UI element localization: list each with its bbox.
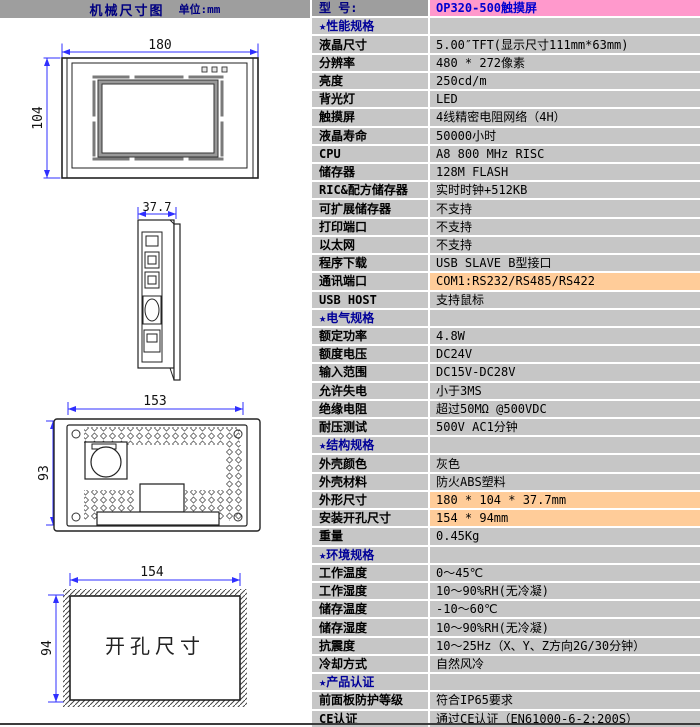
spec-value: 500V AC1分钟 [428, 419, 700, 435]
table-row: 储存湿度 10～90%RH(无冷凝) [312, 617, 700, 635]
table-row: 通讯端口 COM1:RS232/RS485/RS422 [312, 271, 700, 289]
spec-label: CPU [312, 146, 428, 162]
mechanical-drawing-pane: 180 104 [0, 0, 310, 727]
spec-label: 液晶尺寸 [312, 36, 428, 52]
spec-label: 亮度 [312, 73, 428, 89]
table-row: 打印端口 不支持 [312, 217, 700, 235]
spec-value: 0～45℃ [428, 565, 700, 581]
spec-label: 额定功率 [312, 328, 428, 344]
spec-value: 4线精密电阻网络（4H） [428, 109, 700, 125]
spec-value: 154 * 94mm [428, 510, 700, 526]
table-row: 背光灯 LED [312, 89, 700, 107]
spec-label: 分辨率 [312, 55, 428, 71]
table-row: 外壳材料 防火ABS塑料 [312, 472, 700, 490]
table-row: 外形尺寸 180 * 104 * 37.7mm [312, 490, 700, 508]
spec-value: 不支持 [428, 200, 700, 216]
spec-value: A8 800 MHz RISC [428, 146, 700, 162]
spec-label: 输入范围 [312, 364, 428, 380]
datasheet-page: 180 104 [0, 0, 700, 727]
side-com-port [143, 296, 161, 324]
side-power-terminal [144, 330, 160, 352]
table-row: 额度电压 DC24V [312, 344, 700, 362]
spec-label: 绝缘电阻 [312, 401, 428, 417]
cutout-label: 开孔尺寸 [105, 634, 205, 658]
spec-value: 支持鼠标 [428, 292, 700, 308]
spec-label: 抗震度 [312, 638, 428, 654]
spec-label: ★产品认证 [312, 674, 428, 690]
spec-value: 小于3MS [428, 383, 700, 399]
side-depth-dim: 37.7 [143, 200, 172, 214]
spec-value [428, 547, 700, 563]
spec-label: 背光灯 [312, 91, 428, 107]
spec-value: 480 * 272像素 [428, 55, 700, 71]
spec-label: 重量 [312, 528, 428, 544]
spec-value: 50000小时 [428, 128, 700, 144]
mechanical-diagrams: 180 104 [0, 0, 310, 727]
spec-value: 0.45Kg [428, 528, 700, 544]
spec-label: 程序下载 [312, 255, 428, 271]
spec-value: 5.00″TFT(显示尺寸111mm*63mm) [428, 36, 700, 52]
rear-view: 153 93 [37, 394, 260, 531]
table-row: 工作湿度 10～90%RH(无冷凝) [312, 581, 700, 599]
table-row: 额定功率 4.8W [312, 326, 700, 344]
spec-label: ★结构规格 [312, 437, 428, 453]
table-row: 外壳颜色 灰色 [312, 453, 700, 471]
spec-value: DC15V-DC28V [428, 364, 700, 380]
spec-value: 不支持 [428, 219, 700, 235]
rear-width-dim: 153 [143, 394, 166, 409]
spec-value [428, 18, 700, 34]
spec-label: 耐压测试 [312, 419, 428, 435]
table-row: 允许失电 小于3MS [312, 381, 700, 399]
table-row: 亮度 250cd/m [312, 71, 700, 89]
cutout-width-dim: 154 [140, 565, 164, 580]
spec-value: 符合IP65要求 [428, 692, 700, 708]
spec-value: 灰色 [428, 455, 700, 471]
rear-notch [140, 484, 184, 512]
spec-label: RIC&配方储存器 [312, 182, 428, 198]
spec-label: 触摸屏 [312, 109, 428, 125]
spec-label: 外形尺寸 [312, 492, 428, 508]
table-row: 分辨率 480 * 272像素 [312, 53, 700, 71]
table-row: 工作温度 0～45℃ [312, 563, 700, 581]
spec-value: 10～90%RH(无冷凝) [428, 619, 700, 635]
spec-label: 型 号: [312, 0, 428, 16]
spec-label: 额度电压 [312, 346, 428, 362]
spec-value: COM1:RS232/RS485/RS422 [428, 273, 700, 289]
spec-label: 可扩展储存器 [312, 200, 428, 216]
table-row: ★性能规格 [312, 16, 700, 34]
spec-label: 允许失电 [312, 383, 428, 399]
spec-value: 超过50MΩ @500VDC [428, 401, 700, 417]
spec-value [428, 674, 700, 690]
rear-battery-holder [85, 442, 127, 479]
spec-label: 工作温度 [312, 565, 428, 581]
spec-value: 128M FLASH [428, 164, 700, 180]
spec-label: 工作湿度 [312, 583, 428, 599]
spec-label: ★环境规格 [312, 547, 428, 563]
table-row: 绝缘电阻 超过50MΩ @500VDC [312, 399, 700, 417]
table-row: ★环境规格 [312, 545, 700, 563]
spec-label: 前面板防护等级 [312, 692, 428, 708]
table-row: USB HOST 支持鼠标 [312, 290, 700, 308]
table-row: 耐压测试 500V AC1分钟 [312, 417, 700, 435]
spec-value: 10～90%RH(无冷凝) [428, 583, 700, 599]
spec-value: 180 * 104 * 37.7mm [428, 492, 700, 508]
table-row: 触摸屏 4线精密电阻网络（4H） [312, 107, 700, 125]
table-row: 型 号: OP320-500触摸屏 [312, 0, 700, 16]
spec-label: USB HOST [312, 292, 428, 308]
spec-value: -10～60℃ [428, 601, 700, 617]
spec-value: 不支持 [428, 237, 700, 253]
spec-value: 250cd/m [428, 73, 700, 89]
table-row: ★电气规格 [312, 308, 700, 326]
table-row: ★结构规格 [312, 435, 700, 453]
table-row: 储存温度 -10～60℃ [312, 599, 700, 617]
table-row: 以太网 不支持 [312, 235, 700, 253]
spec-value: 自然风冷 [428, 656, 700, 672]
table-row: 液晶尺寸 5.00″TFT(显示尺寸111mm*63mm) [312, 34, 700, 52]
table-row: 重量 0.45Kg [312, 526, 700, 544]
front-view: 180 104 [31, 38, 258, 178]
cutout-view: 154 94 开孔尺寸 [40, 565, 247, 707]
spec-value: 实时时钟+512KB [428, 182, 700, 198]
spec-value [428, 310, 700, 326]
side-view: 37.7 [138, 200, 180, 380]
table-row: 前面板防护等级 符合IP65要求 [312, 690, 700, 708]
spec-label: 储存湿度 [312, 619, 428, 635]
table-row: 储存器 128M FLASH [312, 162, 700, 180]
spec-value: OP320-500触摸屏 [428, 0, 700, 16]
spec-label: 外壳颜色 [312, 455, 428, 471]
table-row: RIC&配方储存器 实时时钟+512KB [312, 180, 700, 198]
spec-label: 储存器 [312, 164, 428, 180]
table-row: 抗震度 10～25Hz（X、Y、Z方向2G/30分钟） [312, 636, 700, 654]
table-row: 程序下载 USB SLAVE B型接口 [312, 253, 700, 271]
bottom-divider [0, 723, 700, 725]
table-row: 可扩展储存器 不支持 [312, 198, 700, 216]
spec-value: 4.8W [428, 328, 700, 344]
front-width-dim: 180 [148, 38, 171, 53]
spec-label: 液晶寿命 [312, 128, 428, 144]
spec-value [428, 437, 700, 453]
table-row: 安装开孔尺寸 154 * 94mm [312, 508, 700, 526]
cutout-height-dim: 94 [40, 640, 55, 656]
spec-label: 以太网 [312, 237, 428, 253]
spec-label: 安装开孔尺寸 [312, 510, 428, 526]
spec-label: 冷却方式 [312, 656, 428, 672]
table-row: ★产品认证 [312, 672, 700, 690]
table-row: 液晶寿命 50000小时 [312, 126, 700, 144]
spec-value: DC24V [428, 346, 700, 362]
spec-label: 储存温度 [312, 601, 428, 617]
rear-height-dim: 93 [37, 465, 52, 481]
spec-value: LED [428, 91, 700, 107]
front-height-dim: 104 [31, 106, 46, 130]
spec-value: 防火ABS塑料 [428, 474, 700, 490]
front-screen [98, 80, 218, 157]
spec-table: 型 号: OP320-500触摸屏 ★性能规格 液晶尺寸 5.00″TFT(显示… [310, 0, 700, 727]
front-led-indicators [202, 67, 227, 72]
table-row: 输入范围 DC15V-DC28V [312, 362, 700, 380]
spec-label: 外壳材料 [312, 474, 428, 490]
table-row: CPU A8 800 MHz RISC [312, 144, 700, 162]
spec-label: 通讯端口 [312, 273, 428, 289]
table-row: 冷却方式 自然风冷 [312, 654, 700, 672]
spec-label: 打印端口 [312, 219, 428, 235]
spec-label: ★电气规格 [312, 310, 428, 326]
spec-value: 10～25Hz（X、Y、Z方向2G/30分钟） [428, 638, 700, 654]
spec-label: ★性能规格 [312, 18, 428, 34]
spec-value: USB SLAVE B型接口 [428, 255, 700, 271]
